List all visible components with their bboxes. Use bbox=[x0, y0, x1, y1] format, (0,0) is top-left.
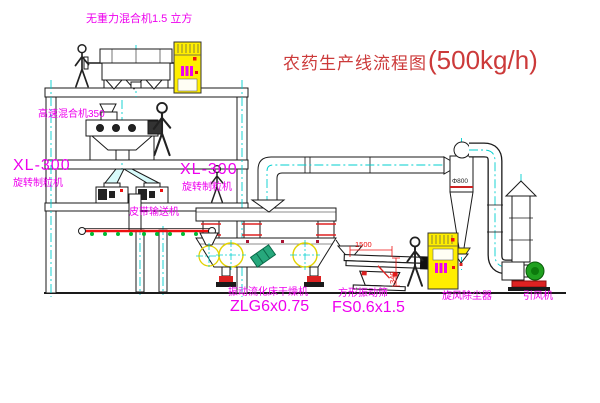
cyclone-label: 旋风除尘器 bbox=[442, 292, 492, 303]
conveyor-rollers bbox=[90, 232, 198, 236]
pesticide-line-flow-diagram: 无重力混合机1.5 立方 农药生产线流程图 (500kg/h) 高速混合机350… bbox=[0, 0, 600, 403]
screen-height-dimension: 340 bbox=[388, 271, 397, 284]
diagram-title: 农药生产线流程图 (500kg/h) bbox=[283, 45, 538, 76]
fluid-bed-dryer bbox=[196, 200, 362, 287]
granulator-right-name: 旋转制粒机 bbox=[182, 183, 232, 194]
granulator-right-model: XL-300 bbox=[180, 162, 238, 179]
indicator-light-icon bbox=[451, 238, 455, 242]
induced-draft-fan bbox=[502, 262, 550, 291]
cabinet-text-marks bbox=[435, 263, 447, 273]
screen-name-label: 方形振动筛 bbox=[338, 289, 388, 300]
control-cabinet-right bbox=[428, 233, 458, 289]
screen-model-label: FS0.6x1.5 bbox=[332, 300, 405, 317]
dryer-model-label: ZLG6x0.75 bbox=[230, 299, 309, 316]
granulator-left bbox=[96, 183, 128, 203]
granulator-left-name: 旋转制粒机 bbox=[13, 179, 63, 190]
cabinet-text-marks bbox=[181, 66, 193, 76]
title-capacity: (500kg/h) bbox=[428, 45, 538, 76]
screen-length-dimension: 1500 bbox=[355, 241, 372, 249]
exhaust-duct bbox=[258, 157, 452, 205]
rain-cap-icon bbox=[506, 181, 536, 196]
high-speed-mixer-label: 高速混合机350 bbox=[38, 110, 105, 121]
fan-label: 引风机 bbox=[523, 292, 553, 303]
cyclone-exhaust-pipe bbox=[469, 150, 516, 267]
title-text: 农药生产线流程图 bbox=[283, 49, 427, 74]
cyclone-diameter-label: Φ800 bbox=[452, 179, 468, 186]
gravity-mixer-label: 无重力混合机1.5 立方 bbox=[86, 14, 192, 26]
indicator-light-icon bbox=[193, 57, 197, 61]
belt-conveyor bbox=[79, 228, 216, 237]
granulator-left-model: XL-300 bbox=[13, 158, 71, 175]
granulator-feed-chutes bbox=[105, 169, 159, 183]
belt-conveyor-label: 皮带输送机 bbox=[129, 208, 179, 219]
dryer-name-label: 振动流化床干燥机 bbox=[228, 288, 308, 299]
control-cabinet-top bbox=[174, 42, 201, 93]
